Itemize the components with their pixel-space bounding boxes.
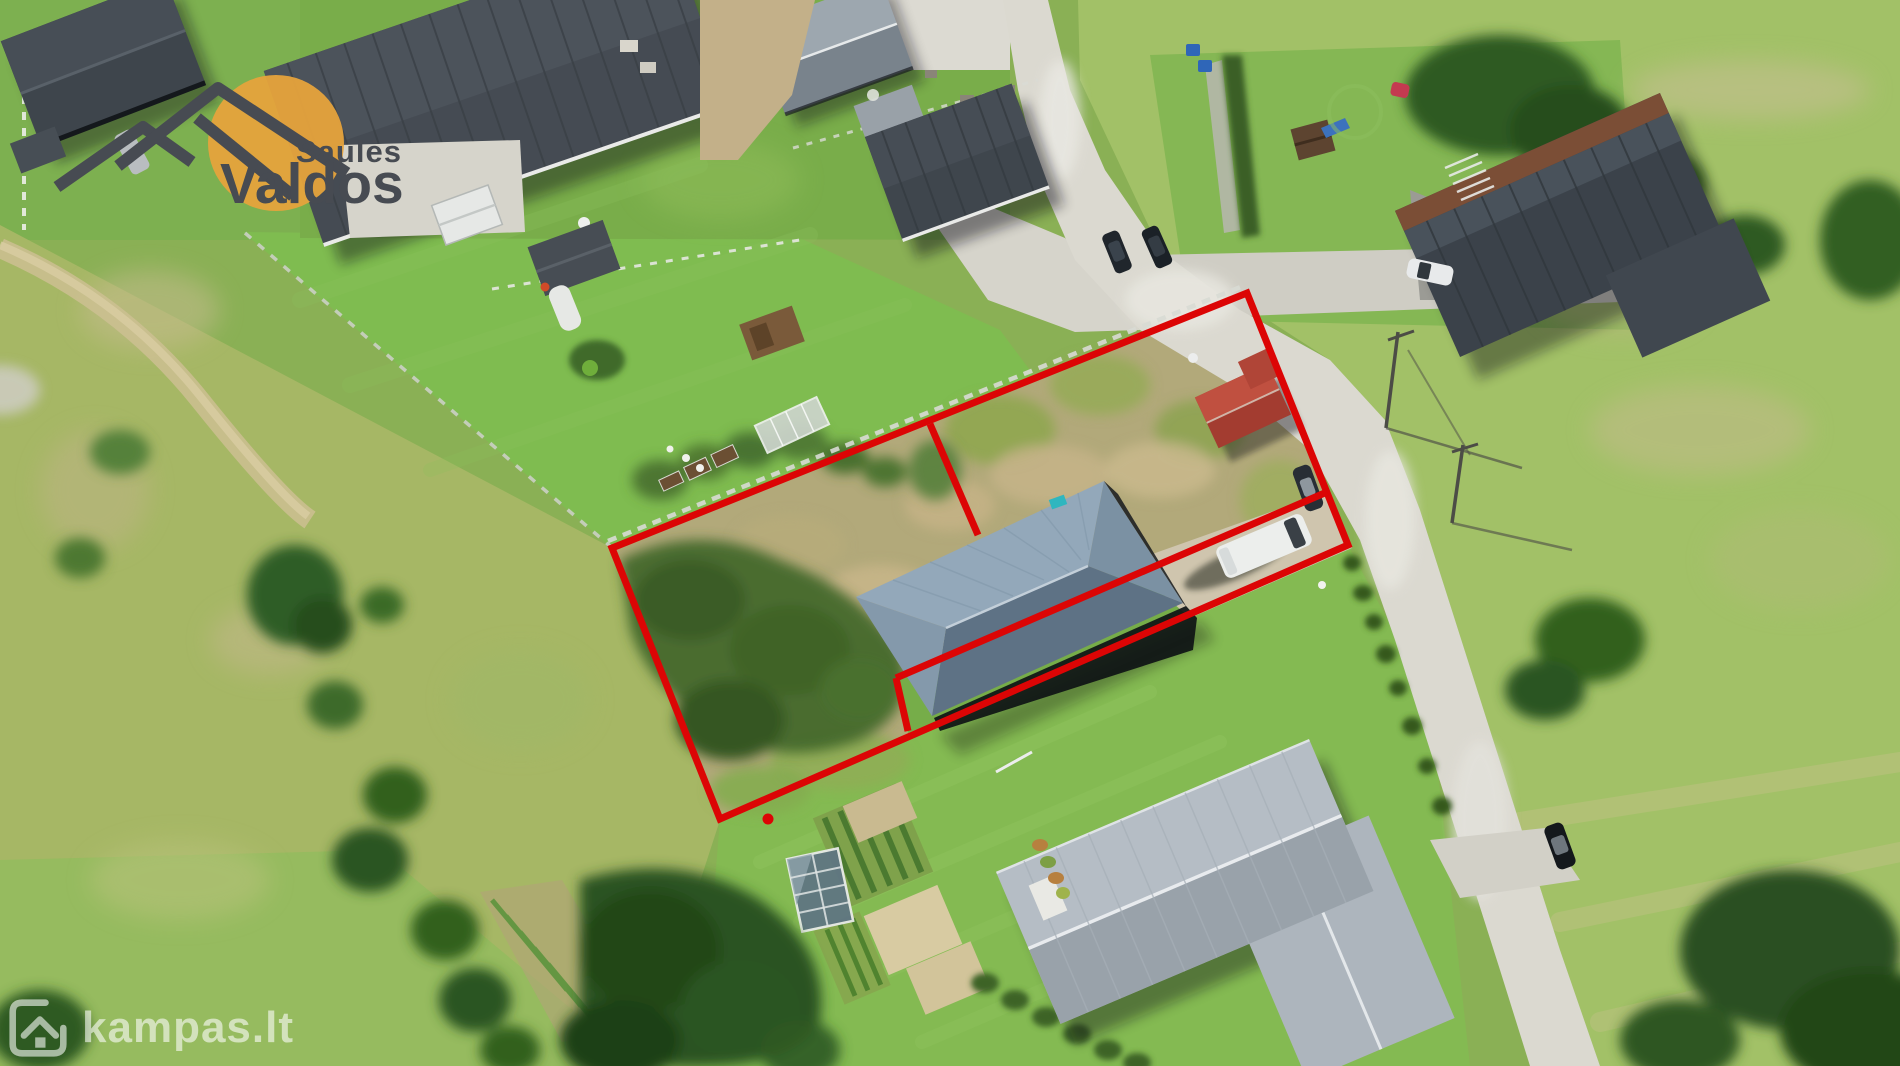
aerial-photo: Saulės Valdos kampas.lt	[0, 0, 1900, 1066]
portal-watermark: kampas.lt	[8, 998, 294, 1058]
house-icon	[8, 998, 68, 1058]
watermark-text: kampas.lt	[82, 1003, 294, 1053]
logo-text-valdos: Valdos	[220, 156, 404, 213]
survey-point-dot	[763, 814, 774, 825]
